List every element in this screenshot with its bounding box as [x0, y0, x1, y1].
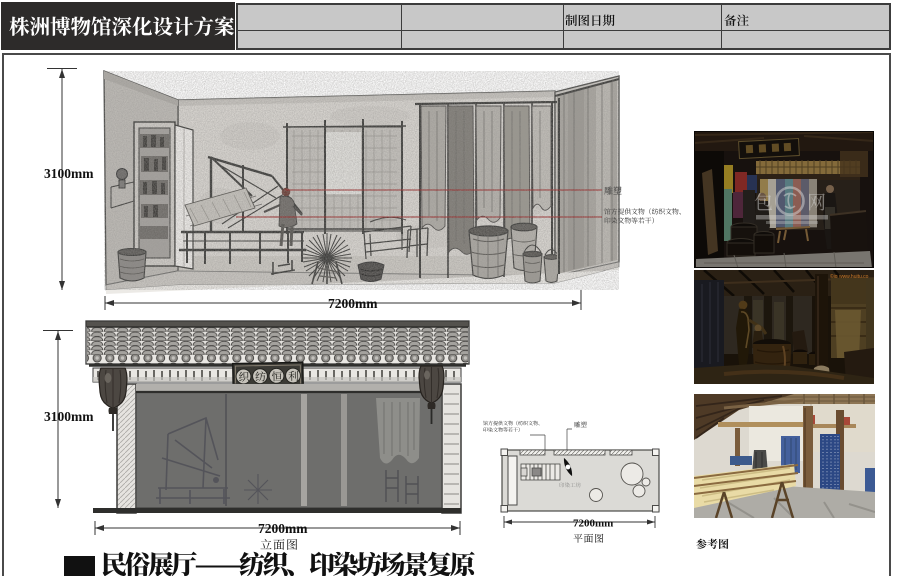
svg-text:雕塑: 雕塑: [574, 420, 588, 429]
svg-text:平面图: 平面图: [573, 530, 605, 545]
svg-text:7200mm: 7200mm: [573, 518, 613, 530]
svg-text:7200mm: 7200mm: [258, 521, 308, 536]
svg-text:印染工坊: 印染工坊: [559, 481, 582, 489]
svg-text:织纺恒利: 织纺恒利: [238, 368, 304, 385]
svg-text:印染文物等若干）: 印染文物等若干）: [483, 427, 523, 434]
svg-text:3100mm: 3100mm: [44, 166, 94, 181]
svg-text:3100mm: 3100mm: [44, 409, 94, 424]
svg-text:7200mm: 7200mm: [328, 296, 378, 311]
